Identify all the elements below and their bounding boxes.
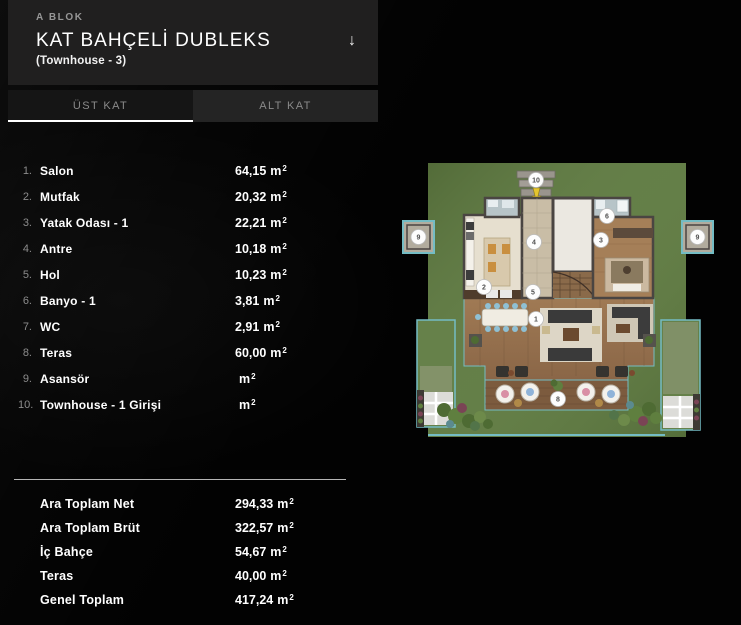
- summary-label: Ara Toplam Brüt: [40, 521, 235, 535]
- room-label: WC: [40, 320, 227, 334]
- summary-label: Ara Toplam Net: [40, 497, 235, 511]
- svg-text:2: 2: [482, 285, 486, 292]
- room-label: Hol: [40, 268, 227, 282]
- room-area: m2: [235, 398, 400, 412]
- room-row: 10. Townhouse - 1 Girişi m2: [0, 392, 400, 418]
- summary-row: İç Bahçe 54,67m2: [0, 540, 400, 564]
- room-label: Mutfak: [40, 190, 227, 204]
- room-number: 1.: [18, 165, 32, 177]
- kitchen: [464, 215, 522, 299]
- room-label: Salon: [40, 164, 227, 178]
- right-terrace-garden: [661, 320, 700, 430]
- svg-text:1: 1: [534, 317, 538, 324]
- dropdown-arrow-icon[interactable]: ↓: [342, 32, 362, 50]
- summary-label: Genel Toplam: [40, 593, 235, 607]
- marker-3: 3: [594, 233, 609, 248]
- marker-5: 5: [526, 285, 541, 300]
- tab-alt-kat[interactable]: ALT KAT: [193, 90, 378, 122]
- svg-text:10: 10: [532, 178, 540, 185]
- marker-8: 8: [551, 392, 566, 407]
- room-area: 2,91m2: [235, 320, 400, 334]
- room-number: 8.: [18, 347, 32, 359]
- floor-tabs: ÜST KAT ALT KAT: [8, 90, 378, 122]
- svg-text:8: 8: [556, 397, 560, 404]
- svg-text:5: 5: [531, 290, 535, 297]
- summary-value: 322,57m2: [235, 521, 400, 535]
- summary-value: 54,67m2: [235, 545, 400, 559]
- summary-row: Ara Toplam Brüt 322,57m2: [0, 516, 400, 540]
- stairs: [553, 272, 595, 298]
- room-area: 10,23m2: [235, 268, 400, 282]
- room-area: 3,81m2: [235, 294, 400, 308]
- summary-value: 294,33m2: [235, 497, 400, 511]
- block-label: A BLOK: [36, 12, 362, 23]
- room-number: 3.: [18, 217, 32, 229]
- room-row: 4. Antre 10,18m2: [0, 236, 400, 262]
- room-number: 2.: [18, 191, 32, 203]
- page: A BLOK KAT BAHÇELİ DUBLEKS ↓ (Townhouse …: [0, 0, 741, 625]
- room-label: Asansör: [40, 372, 227, 386]
- core-room: [553, 198, 593, 272]
- room-number: 7.: [18, 321, 32, 333]
- bedroom: [593, 217, 653, 298]
- marker-2: 2: [477, 280, 492, 295]
- room-number: 4.: [18, 243, 32, 255]
- room-list: 1. Salon 64,15m2 2. Mutfak 20,32m2 3. Ya…: [0, 158, 400, 418]
- svg-text:9: 9: [696, 235, 700, 242]
- marker-4: 4: [527, 235, 542, 250]
- summary-label: Teras: [40, 569, 235, 583]
- unit-type-dropdown[interactable]: KAT BAHÇELİ DUBLEKS ↓: [36, 30, 362, 52]
- room-label: Yatak Odası - 1: [40, 216, 227, 230]
- summary-divider: [14, 479, 346, 480]
- summary-label: İç Bahçe: [40, 545, 235, 559]
- svg-text:6: 6: [605, 214, 609, 221]
- room-number: 10.: [18, 399, 32, 411]
- marker-1: 1: [529, 312, 544, 327]
- marker-6: 6: [600, 209, 615, 224]
- room-row: 2. Mutfak 20,32m2: [0, 184, 400, 210]
- room-row: 5. Hol 10,23m2: [0, 262, 400, 288]
- tab-ust-kat[interactable]: ÜST KAT: [8, 90, 193, 122]
- marker-9-right: 9: [690, 230, 705, 245]
- room-row: 9. Asansör m2: [0, 366, 400, 392]
- summary-value: 40,00m2: [235, 569, 400, 583]
- room-label: Teras: [40, 346, 227, 360]
- room-area: 64,15m2: [235, 164, 400, 178]
- svg-text:9: 9: [417, 235, 421, 242]
- room-number: 5.: [18, 269, 32, 281]
- upper-bathroom: [485, 198, 519, 217]
- room-area: 20,32m2: [235, 190, 400, 204]
- room-row: 1. Salon 64,15m2: [0, 158, 400, 184]
- floorplan-image: 10 9 9 6 3 4 2 5 1 8: [400, 158, 741, 460]
- marker-10: 10: [529, 173, 544, 188]
- room-area: m2: [235, 372, 400, 386]
- totals-summary: Ara Toplam Net 294,33m2 Ara Toplam Brüt …: [0, 492, 400, 612]
- room-area: 10,18m2: [235, 242, 400, 256]
- summary-row: Teras 40,00m2: [0, 564, 400, 588]
- room-row: 8. Teras 60,00m2: [0, 340, 400, 366]
- svg-text:4: 4: [532, 240, 536, 247]
- unit-type-title: KAT BAHÇELİ DUBLEKS: [36, 30, 271, 52]
- room-number: 6.: [18, 295, 32, 307]
- svg-text:3: 3: [599, 238, 603, 245]
- summary-row: Ara Toplam Net 294,33m2: [0, 492, 400, 516]
- marker-9-left: 9: [411, 230, 426, 245]
- room-row: 3. Yatak Odası - 1 22,21m2: [0, 210, 400, 236]
- summary-value: 417,24m2: [235, 593, 400, 607]
- room-number: 9.: [18, 373, 32, 385]
- room-row: 6. Banyo - 1 3,81m2: [0, 288, 400, 314]
- room-area: 22,21m2: [235, 216, 400, 230]
- room-area: 60,00m2: [235, 346, 400, 360]
- room-label: Banyo - 1: [40, 294, 227, 308]
- unit-header-panel: A BLOK KAT BAHÇELİ DUBLEKS ↓ (Townhouse …: [8, 0, 378, 85]
- room-label: Townhouse - 1 Girişi: [40, 398, 227, 412]
- room-label: Antre: [40, 242, 227, 256]
- room-row: 7. WC 2,91m2: [0, 314, 400, 340]
- summary-row: Genel Toplam 417,24m2: [0, 588, 400, 612]
- unit-subtitle: (Townhouse - 3): [36, 55, 362, 67]
